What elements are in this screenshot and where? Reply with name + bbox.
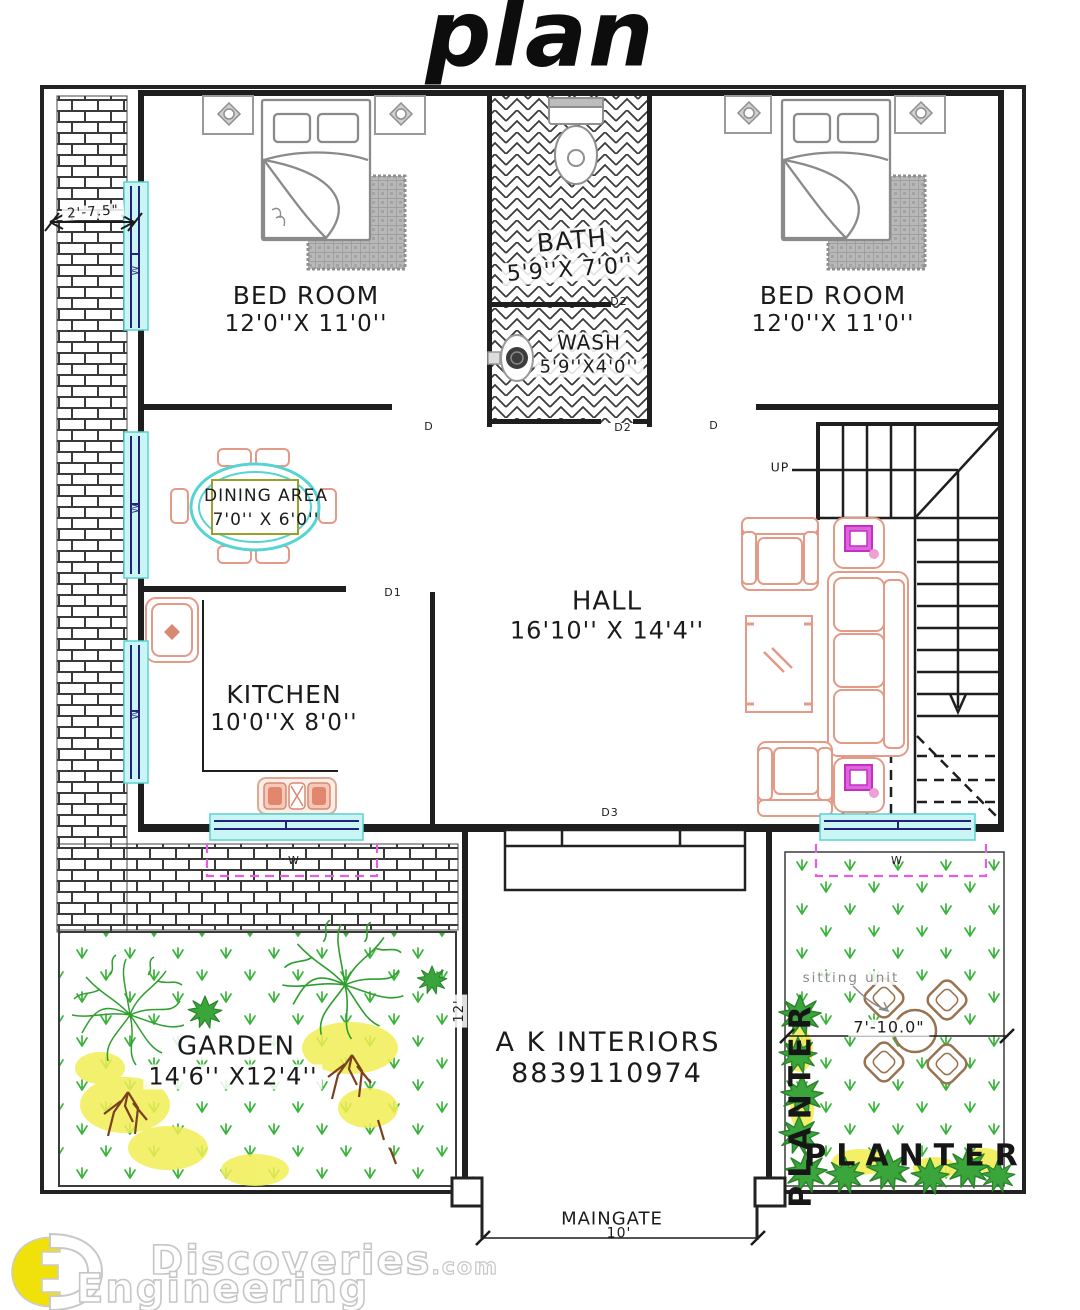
bedroom-right-dim: 12'0''X 11'0''	[752, 312, 915, 336]
dining-dim: 7'0'' X 6'0''	[213, 512, 320, 530]
hall-label: HALL	[572, 588, 642, 615]
window-w-label-2: W	[131, 503, 142, 514]
garden-label: GARDEN	[172, 1033, 300, 1060]
door-d2-label-1: D2	[610, 296, 627, 308]
stove-icon	[258, 778, 336, 814]
planter-label-bottom: PLANTER	[804, 1140, 1028, 1172]
sitting-unit-label: sitting unit	[798, 971, 905, 985]
wash-dim: 5'9''X4'0''	[535, 359, 644, 378]
armchair-bottom	[758, 742, 832, 816]
window-w-label-3: W	[131, 709, 142, 720]
wash-label: WASH	[552, 333, 626, 354]
window-w-label-5: W	[891, 855, 903, 867]
company-name: A K INTERIORS	[496, 1029, 721, 1057]
bedroom-left-label: BED ROOM	[233, 283, 379, 309]
page-title: plan	[426, 0, 655, 88]
sofa	[828, 572, 908, 756]
door-d-label-1: D	[424, 421, 433, 433]
sitting-width-dim: 7'-10.0"	[848, 1020, 929, 1037]
planter-label-vertical: PLANTER	[785, 998, 817, 1208]
garden-dim: 14'6'' X12'4''	[143, 1064, 322, 1089]
dining-label: DINING AREA	[204, 488, 328, 506]
kitchen-label: KITCHEN	[226, 682, 341, 708]
sofa-set	[742, 518, 908, 816]
window-w-label-4: W	[288, 855, 300, 867]
bedroom-right-bed	[782, 100, 890, 240]
window-w-label-1: W	[131, 265, 142, 276]
stairs-up-label: UP	[771, 460, 790, 473]
kitchen-dim: 10'0''X 8'0''	[210, 711, 357, 735]
hall-dim: 16'10'' X 14'4''	[510, 618, 704, 643]
entrance-steps	[505, 830, 745, 890]
watermark-word2: Engineering	[76, 1266, 369, 1310]
gate-width-dim: 10'	[607, 1227, 632, 1242]
bedroom-right-label: BED ROOM	[760, 283, 906, 309]
bedroom-left-bed	[262, 100, 370, 240]
door-d-label-2: D	[709, 420, 718, 432]
door-d1-label: D1	[384, 587, 401, 599]
watermark-tld: .com	[432, 1255, 499, 1280]
company-phone: 8839110974	[511, 1060, 703, 1088]
garden-depth-dim: 12'	[453, 994, 467, 1027]
floor-plan-page: plan	[0, 0, 1080, 1310]
bedroom-left-dim: 12'0''X 11'0''	[225, 312, 388, 336]
door-d2-label-2: D2	[614, 422, 631, 434]
kitchen-sink-icon	[146, 598, 198, 662]
armchair-top	[742, 518, 818, 590]
floor-plan-drawing	[0, 0, 1080, 1310]
coffee-table	[746, 616, 812, 712]
door-d3-label: D3	[601, 807, 618, 819]
